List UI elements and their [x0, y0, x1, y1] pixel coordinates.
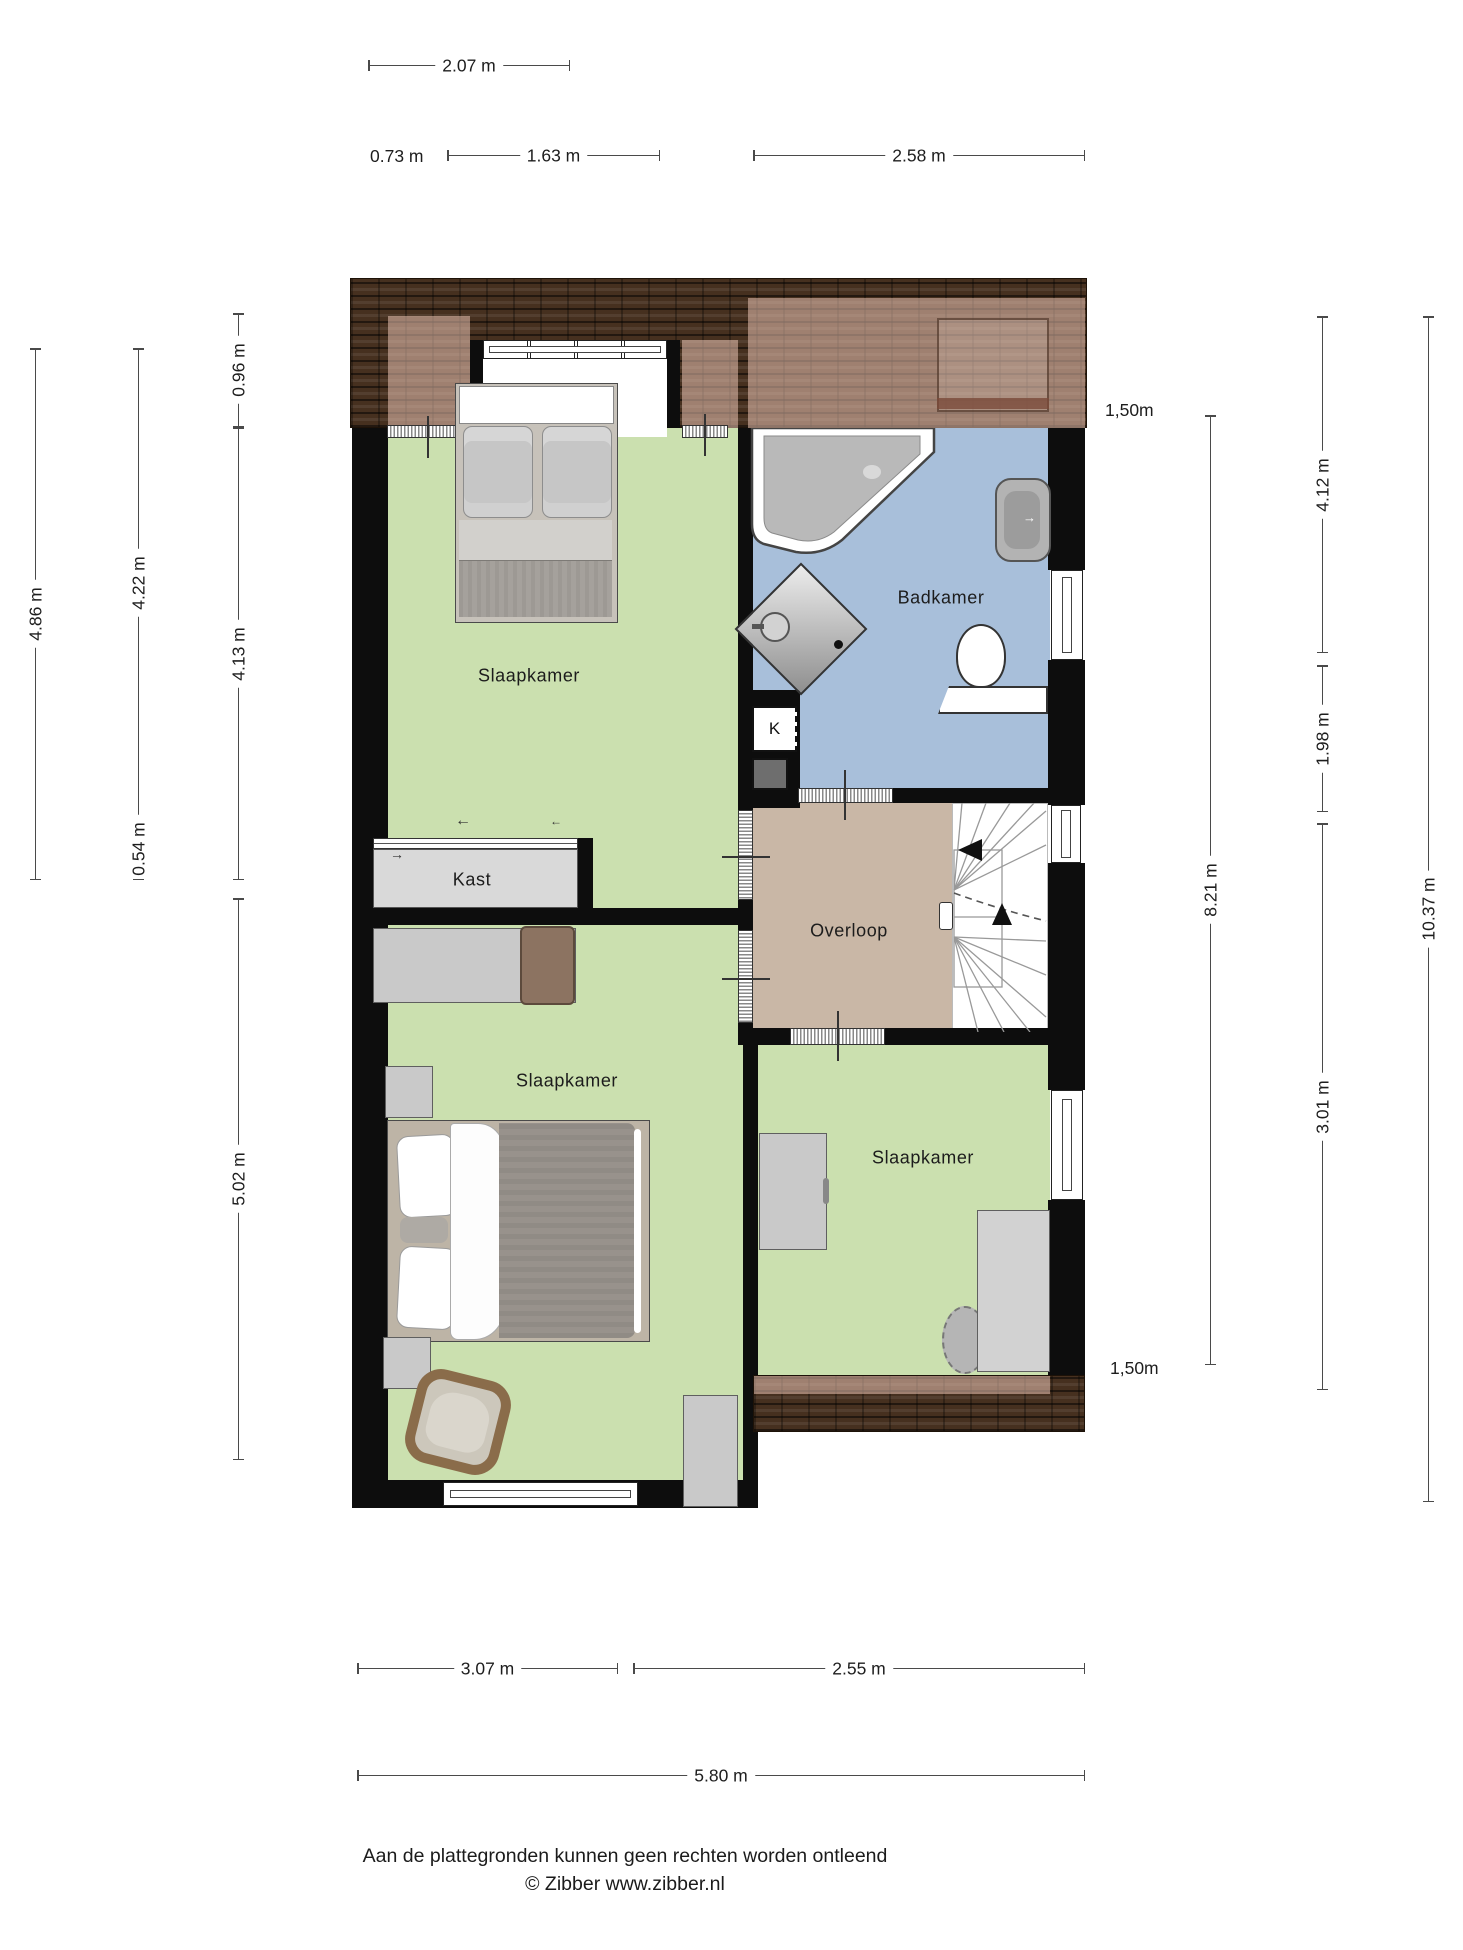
door-bathroom [798, 788, 893, 803]
wall-bedroom-divider [352, 908, 753, 925]
dim-right-mid-height: 8.21 m [1210, 415, 1211, 1365]
roof-window-tick-right [704, 414, 706, 456]
dim-right-total-height: 10.37 m [1428, 316, 1429, 1502]
wall-right-stairs [1048, 863, 1085, 1045]
dim-top-offset: 0.73 m [370, 146, 424, 167]
bed2-cushion [400, 1217, 448, 1243]
roof-window-tick-left [427, 416, 429, 458]
wall-stairs-bottom-left [743, 1028, 790, 1045]
bathroom-label: Badkamer [898, 588, 985, 609]
closet-arrow-slide: ← [455, 812, 471, 830]
closet-arrow-open: → [390, 846, 404, 862]
sink: → [995, 478, 1051, 562]
bedroom-right-label: Slaapkamer [872, 1148, 974, 1169]
door-bedroom-middle-landing [738, 930, 753, 1023]
roof-top-light-mid [682, 340, 738, 428]
bed2-sheet [450, 1123, 504, 1340]
floorplan-page: ← ← → → K [0, 0, 1463, 1950]
dim-bottom-right-width: 2.55 m [633, 1668, 1085, 1669]
window-bathroom [1051, 570, 1083, 660]
dim-right-bath-height: 4.12 m [1322, 316, 1323, 653]
bed-headboard [459, 386, 614, 424]
door-bedroom-top-landing [738, 810, 753, 900]
stair-door-leaf [939, 902, 953, 930]
dim-right-bedroom-height: 3.01 m [1322, 823, 1323, 1390]
wall-right-bedroom-lower [1048, 1200, 1085, 1375]
bed-blanket [459, 560, 612, 617]
bed-double-middle [387, 1120, 650, 1342]
wardrobe-right [977, 1210, 1050, 1372]
disclaimer-text: Aan de plattegronden kunnen geen rechten… [280, 1845, 970, 1868]
desk-chair-middle [520, 926, 575, 1005]
wall-right-bath-lower [1048, 660, 1085, 805]
wall-bedrooms-divider-vert [743, 1028, 758, 1508]
wall-dormer-stub-right [667, 340, 680, 428]
closet-arrow-slide2: ← [550, 814, 562, 828]
dim-top-dormer-total: 2.07 m [368, 65, 570, 66]
closet-label: Kast [453, 870, 491, 891]
cabinet-middle-bedroom [683, 1395, 738, 1507]
height-marker-bottom: 1,50m [1110, 1358, 1159, 1379]
bed-pillow-right [542, 426, 612, 518]
credit-text: © Zibber www.zibber.nl [280, 1873, 970, 1896]
stairs [952, 803, 1048, 1032]
duct-box [752, 758, 788, 790]
dim-left-outer-height: 4.86 m [35, 348, 36, 880]
nightstand-top [385, 1066, 433, 1118]
dim-left-roof-edge: 0.96 m [238, 313, 239, 427]
k-closet-box: K [752, 706, 797, 752]
bedroom-top-label: Slaapkamer [478, 666, 580, 687]
landing-label: Overloop [810, 921, 888, 942]
sink-tap-icon: → [1023, 510, 1036, 525]
wall-closet-stub [578, 838, 593, 908]
bedroom-middle-label: Slaapkamer [516, 1071, 618, 1092]
dim-bottom-total-width: 5.80 m [357, 1775, 1085, 1776]
bed-sheet [459, 520, 612, 562]
shower-faucet [760, 612, 790, 642]
bed2-pillow-bottom [396, 1246, 458, 1331]
dim-left-closet-depth: 0.54 m [138, 818, 139, 880]
dormer-window [483, 340, 667, 359]
dim-bottom-left-width: 3.07 m [357, 1668, 618, 1669]
dim-left-room-bottom: 5.02 m [238, 898, 239, 1460]
bed-double-top [455, 383, 618, 623]
dim-top-right-section: 2.58 m [753, 155, 1085, 156]
door-tick-1 [722, 856, 770, 858]
toilet-bowl [956, 624, 1006, 688]
roof-bottom-light [754, 1376, 1050, 1394]
door-tick-2 [722, 978, 770, 980]
toilet-cistern [938, 686, 1048, 714]
wall-right-bath-upper [1048, 425, 1085, 570]
dim-right-landing-height: 1.98 m [1322, 665, 1323, 812]
dim-left-room-inner: 4.13 m [238, 427, 239, 880]
bed2-mattress-edge [634, 1129, 641, 1333]
bed2-blanket [499, 1123, 635, 1338]
height-marker-top: 1,50m [1105, 400, 1154, 421]
window-bedroom-right [1051, 1090, 1083, 1200]
bed2-pillow-top [396, 1134, 458, 1219]
shower-drain-dot [834, 640, 843, 649]
wicker-chair-cushion [422, 1388, 494, 1457]
window-stairwell [1051, 805, 1081, 863]
dim-top-dormer-window: 1.63 m [447, 155, 660, 156]
wall-right-bedroom-upper [1048, 1045, 1085, 1090]
door-tick-4 [837, 1011, 839, 1061]
wall-landing-left-mid [738, 900, 753, 930]
desk-right-knobs [823, 1178, 829, 1204]
desk-right [759, 1133, 827, 1250]
door-tick-3 [844, 770, 846, 820]
roof-dormer-window-sill [937, 398, 1049, 409]
shower-faucet-stem [752, 624, 764, 629]
k-closet-label: K [769, 719, 780, 739]
dim-left-room-top: 4.22 m [138, 348, 139, 818]
bed-pillow-left [463, 426, 533, 518]
landing-floor [753, 803, 952, 1032]
window-bedroom-middle [443, 1482, 638, 1506]
corner-bath [750, 428, 936, 560]
